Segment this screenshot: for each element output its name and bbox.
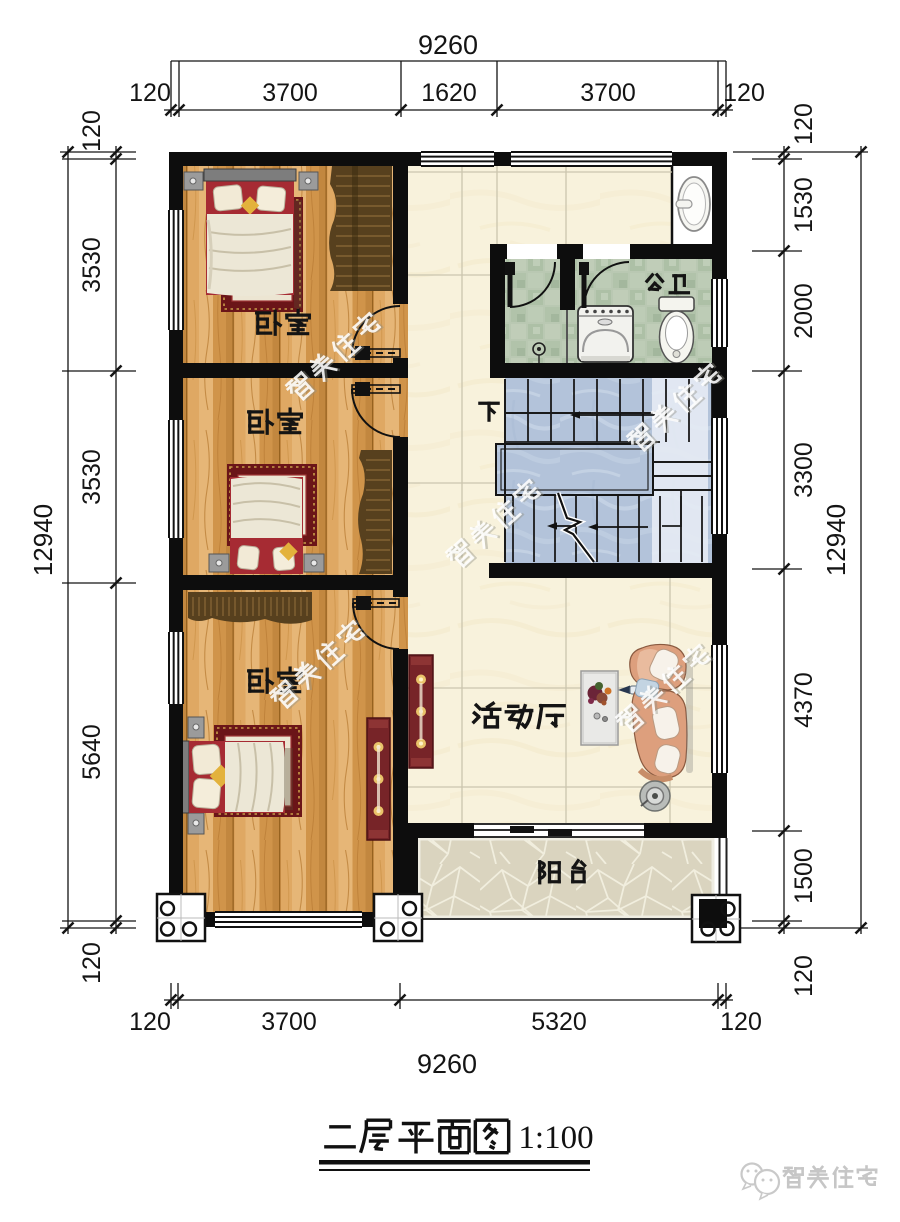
svg-text:2000: 2000 [790,283,818,339]
svg-text:4370: 4370 [790,672,818,728]
svg-text:12940: 12940 [821,504,851,576]
svg-text:1500: 1500 [790,848,818,904]
svg-text:120: 120 [790,103,818,145]
svg-text:120: 120 [78,942,106,984]
svg-text:1530: 1530 [790,177,818,233]
svg-text:5320: 5320 [531,1008,587,1036]
svg-text:5640: 5640 [78,724,106,780]
svg-text:1620: 1620 [421,79,477,107]
svg-text:3530: 3530 [78,449,106,505]
svg-text:120: 120 [78,110,106,152]
svg-text:3300: 3300 [790,442,818,498]
svg-text:3700: 3700 [580,79,636,107]
svg-text:3530: 3530 [78,237,106,293]
svg-text:9260: 9260 [417,1049,477,1079]
svg-text:120: 120 [129,1008,171,1036]
svg-text:3700: 3700 [262,79,318,107]
svg-text:3700: 3700 [261,1008,317,1036]
svg-text:12940: 12940 [28,504,58,576]
svg-text:9260: 9260 [418,30,478,60]
svg-text:120: 120 [790,955,818,997]
svg-text:120: 120 [723,79,765,107]
svg-text:1:100: 1:100 [518,1120,593,1156]
svg-text:120: 120 [720,1008,762,1036]
svg-text:120: 120 [129,79,171,107]
